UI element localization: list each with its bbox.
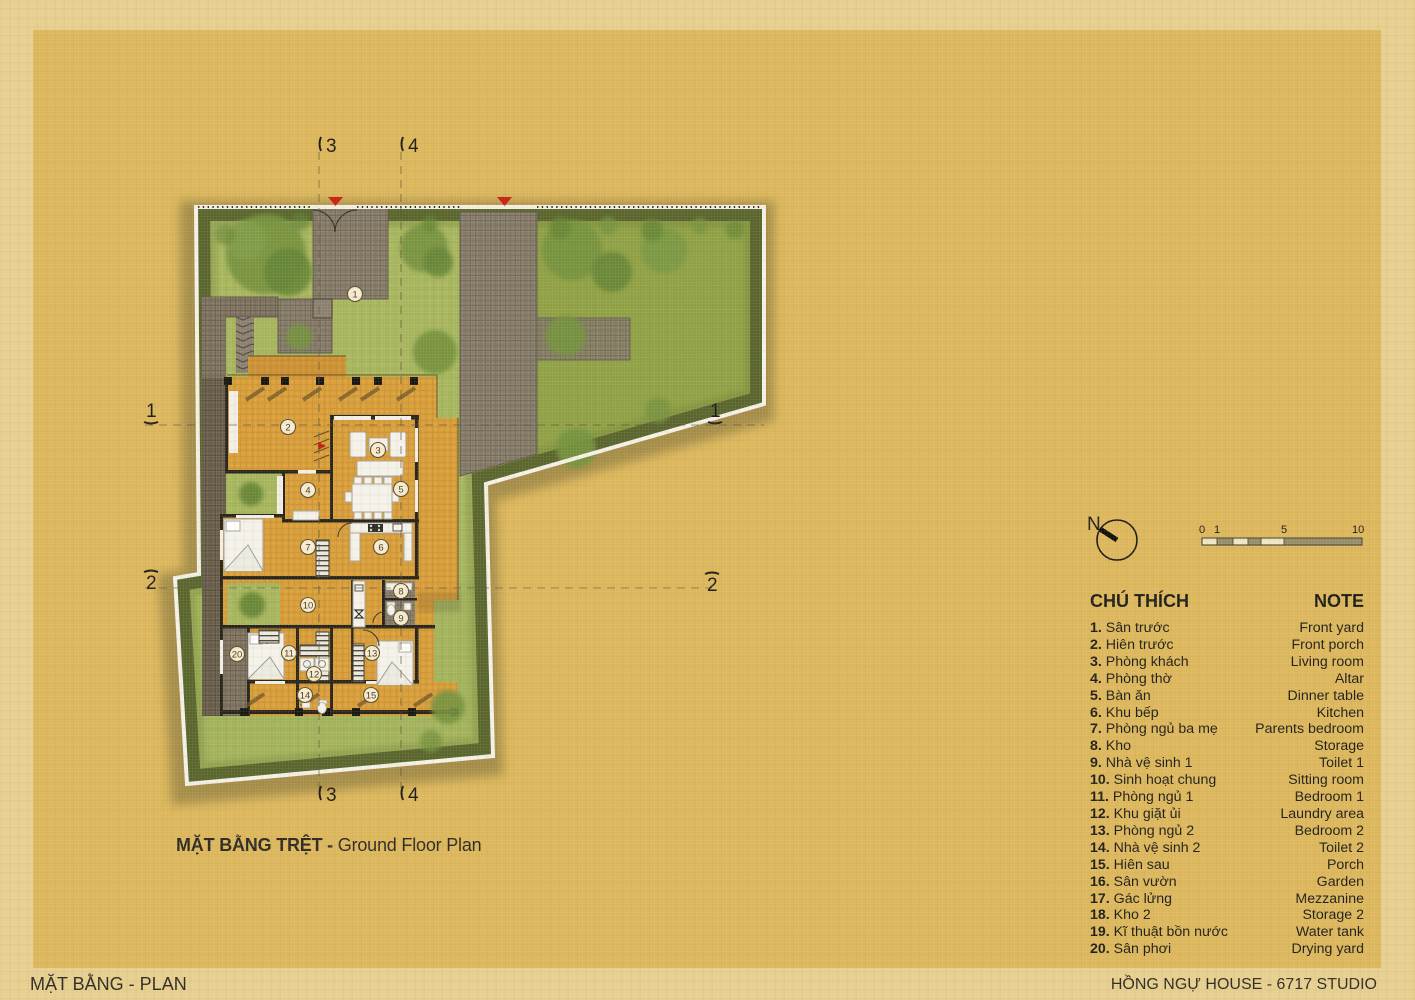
svg-text:4: 4 xyxy=(408,785,419,806)
svg-text:1: 1 xyxy=(1214,524,1220,536)
svg-text:N: N xyxy=(1087,514,1101,535)
svg-text:2: 2 xyxy=(285,423,290,434)
svg-text:5: 5 xyxy=(398,485,403,496)
svg-text:20: 20 xyxy=(232,650,243,661)
svg-text:4: 4 xyxy=(408,136,419,157)
svg-text:1: 1 xyxy=(710,401,721,422)
svg-text:11: 11 xyxy=(284,649,294,660)
svg-text:2: 2 xyxy=(146,573,157,594)
svg-text:5: 5 xyxy=(1281,524,1287,536)
svg-text:1: 1 xyxy=(352,290,357,301)
svg-text:13: 13 xyxy=(367,649,378,660)
svg-text:4: 4 xyxy=(305,486,310,497)
svg-text:3: 3 xyxy=(326,785,337,806)
svg-text:7: 7 xyxy=(305,543,310,554)
svg-text:2: 2 xyxy=(707,575,718,596)
svg-text:1: 1 xyxy=(146,401,157,422)
svg-text:12: 12 xyxy=(309,670,320,681)
svg-text:3: 3 xyxy=(326,136,337,157)
svg-text:8: 8 xyxy=(398,587,403,598)
svg-text:10: 10 xyxy=(303,601,314,612)
svg-text:0: 0 xyxy=(1199,524,1205,536)
svg-text:3: 3 xyxy=(375,446,380,457)
svg-text:6: 6 xyxy=(378,543,383,554)
svg-text:15: 15 xyxy=(366,691,377,702)
svg-text:10: 10 xyxy=(1352,524,1364,536)
svg-text:9: 9 xyxy=(398,614,403,625)
svg-text:14: 14 xyxy=(300,691,311,702)
